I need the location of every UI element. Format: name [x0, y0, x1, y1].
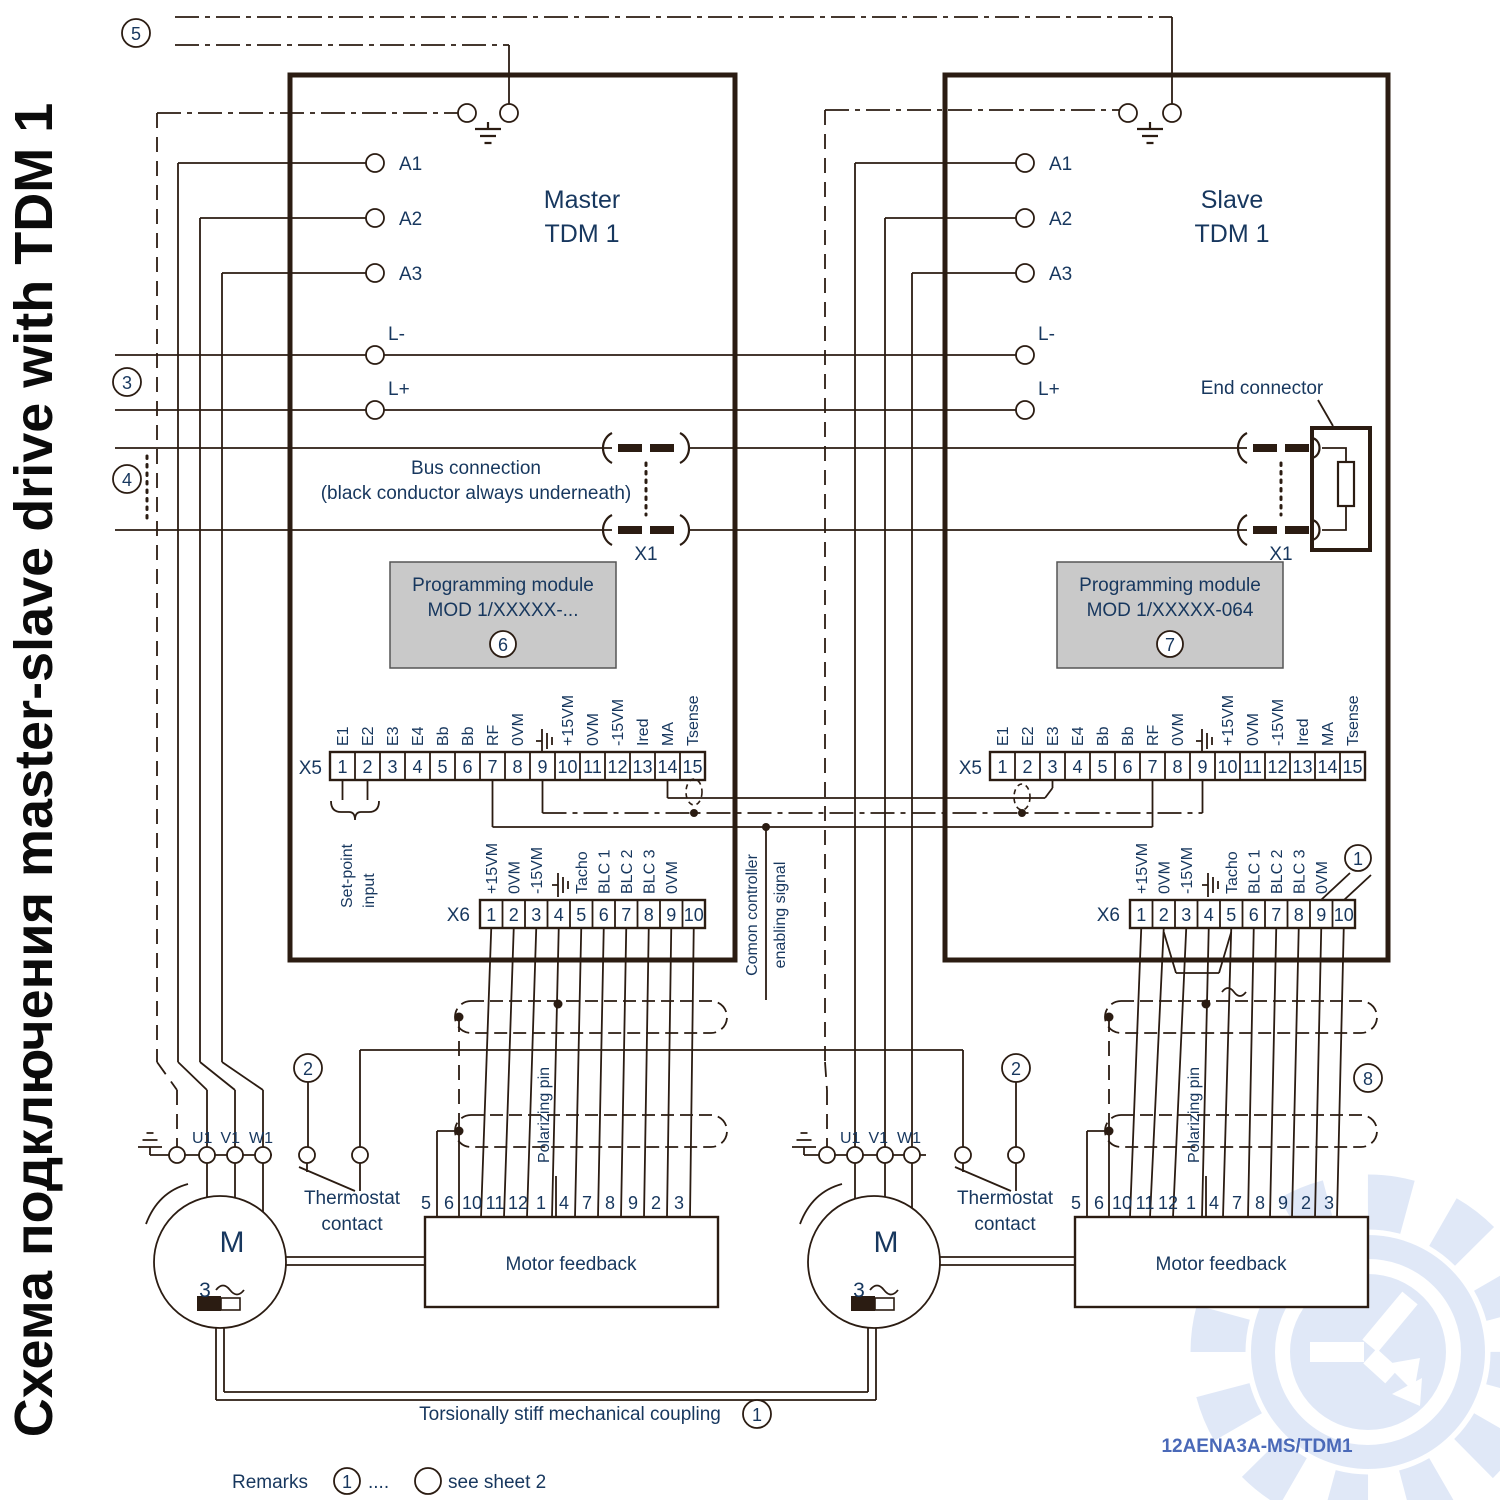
- x5-pin-number: 1: [337, 757, 347, 777]
- power-wires-master: [157, 154, 384, 1147]
- ground-icon: [475, 122, 501, 143]
- x5-pin-number: 5: [437, 757, 447, 777]
- ground-icon: [1196, 729, 1212, 753]
- x5-pin-number: 5: [1097, 757, 1107, 777]
- setpoint-label: input: [361, 873, 378, 908]
- x5-pin-number: 4: [1072, 757, 1082, 777]
- x5-signal-label: E4: [1070, 726, 1087, 746]
- feedback-pin-number: 4: [559, 1193, 569, 1213]
- common-signal-label: Comon controller: [744, 853, 761, 976]
- x5-signal-label: RF: [485, 724, 502, 746]
- x6-label: X6: [1097, 905, 1120, 926]
- svg-text:7: 7: [1165, 635, 1175, 655]
- ground-icon: [1202, 873, 1218, 897]
- x6-pin-number: 4: [554, 905, 564, 925]
- feedback-pin-number: 2: [651, 1193, 661, 1213]
- ground-icon: [536, 729, 552, 753]
- motor-terminal-label: V1: [869, 1130, 889, 1147]
- motor-terminal-label: U1: [192, 1130, 213, 1147]
- feedback-pin-number: 9: [1278, 1193, 1288, 1213]
- doc-number: 12AENA3A-MS/TDM1: [1161, 1436, 1353, 1457]
- x6-signal-label: BLC 1: [597, 849, 614, 894]
- x5-pin-number: 7: [1147, 757, 1157, 777]
- x6-pin-number: 1: [1136, 905, 1146, 925]
- svg-text:5: 5: [131, 24, 141, 44]
- x5-signal-label: -15VM: [1270, 699, 1287, 746]
- cable-shield: [1105, 1001, 1377, 1033]
- feedback-pin-number: 6: [444, 1193, 454, 1213]
- x6-pin-number: 2: [1159, 905, 1169, 925]
- x5-signal-label: E2: [360, 726, 377, 746]
- cable-shield: [455, 1001, 727, 1033]
- x5-pin-number: 14: [657, 757, 677, 777]
- feedback-pin-number: 1: [1186, 1193, 1196, 1213]
- empty-badge-circle: [415, 1468, 441, 1494]
- x5-signal-label: 0VM: [585, 713, 602, 746]
- x6-signal-label: BLC 2: [1269, 849, 1286, 894]
- motor-cable-slave: [1087, 928, 1377, 1217]
- svg-text:6: 6: [498, 635, 508, 655]
- motor-phase-label: 3: [853, 1279, 865, 1302]
- feedback-pin-number: 9: [628, 1193, 638, 1213]
- x5-pin-number: 1: [997, 757, 1007, 777]
- x5-signal-label: Tsense: [1345, 695, 1362, 746]
- ground-icon: [1137, 122, 1163, 143]
- x6-signal-label: 0VM: [1157, 861, 1174, 894]
- remarks-label: Remarks: [232, 1472, 308, 1493]
- x6-pin-number: 6: [599, 905, 609, 925]
- x6-signal-label: +15VM: [1134, 843, 1151, 894]
- motor-m-label: M: [874, 1226, 899, 1259]
- terminal-label: A1: [399, 154, 422, 175]
- x5-signal-label: Bb: [435, 726, 452, 746]
- thermostat-label: Thermostat: [304, 1188, 401, 1209]
- motor-feedback-label: Motor feedback: [506, 1254, 637, 1275]
- x5-signal-label: -15VM: [610, 699, 627, 746]
- terminating-resistor: [1338, 462, 1354, 506]
- x6-signal-label: 0VM: [507, 861, 524, 894]
- feedback-pin-number: 3: [1324, 1193, 1334, 1213]
- x5-signal-label: 0VM: [510, 713, 527, 746]
- x5-signal-label: E1: [335, 726, 352, 746]
- bus-label-2: (black conductor always underneath): [321, 483, 632, 504]
- feedback-pin-number: 4: [1209, 1193, 1219, 1213]
- x5-pin-number: 13: [1292, 757, 1312, 777]
- motor-cable-master: [437, 928, 727, 1217]
- x5-pin-number: 4: [412, 757, 422, 777]
- x5-label: X5: [959, 758, 982, 779]
- x5-pin-number: 12: [607, 757, 627, 777]
- x5-signal-label: Ired: [1295, 718, 1312, 746]
- x6-pin-number: 5: [1226, 905, 1236, 925]
- wiring-diagram: Схема подключения master-slave drive wit…: [0, 0, 1500, 1500]
- x5-pin-number: 12: [1267, 757, 1287, 777]
- mechanical-coupling: [216, 1328, 876, 1400]
- polarizing-pin-label: Polarizing pin: [1186, 1067, 1203, 1163]
- feedback-pin-number: 10: [1112, 1193, 1132, 1213]
- x6-signal-label: BLC 3: [642, 849, 659, 894]
- x5-signal-label: E1: [995, 726, 1012, 746]
- motor-master: [146, 1184, 286, 1328]
- x5-pin-number: 3: [387, 757, 397, 777]
- terminal-label: A3: [1049, 264, 1072, 285]
- svg-text:1: 1: [1353, 849, 1363, 869]
- cable-shield: [455, 1115, 727, 1147]
- module-label: Programming module: [412, 575, 594, 596]
- x5-signal-label: RF: [1145, 724, 1162, 746]
- remarks-see-sheet: see sheet 2: [448, 1472, 546, 1493]
- motor-terminal-label: W1: [249, 1130, 273, 1147]
- x6-pin-number: 10: [684, 905, 704, 925]
- thermostat-label: Thermostat: [957, 1188, 1054, 1209]
- svg-text:1: 1: [752, 1405, 762, 1425]
- x5-pin-number: 2: [1022, 757, 1032, 777]
- feedback-pin-number: 2: [1301, 1193, 1311, 1213]
- x5-signal-label: E2: [1020, 726, 1037, 746]
- feedback-pin-number: 8: [1255, 1193, 1265, 1213]
- master-title: Master: [544, 186, 620, 214]
- x5-interconnect: [331, 779, 1203, 1000]
- x6-signal-label: BLC 2: [619, 849, 636, 894]
- x6-signal-label: -15VM: [529, 847, 546, 894]
- feedback-pin-number: 11: [486, 1193, 505, 1213]
- terminal-label: A3: [399, 264, 422, 285]
- x5-signal-label: E4: [410, 726, 427, 746]
- x1-label: X1: [634, 544, 657, 565]
- common-signal-label: enabling signal: [772, 862, 789, 969]
- x6-signal-label: Tacho: [574, 851, 591, 894]
- end-connector: [1312, 400, 1370, 550]
- thermostat-label: contact: [321, 1214, 383, 1235]
- x6-pin-number: 8: [644, 905, 654, 925]
- module-label: Programming module: [1079, 575, 1261, 596]
- feedback-pin-number: 7: [1232, 1193, 1242, 1213]
- svg-text:1: 1: [342, 1472, 352, 1492]
- x6-pin-number: 3: [1181, 905, 1191, 925]
- x6-pin-number: 5: [576, 905, 586, 925]
- feedback-pin-number: 7: [582, 1193, 592, 1213]
- x5-pin-number: 2: [362, 757, 372, 777]
- x5-pin-number: 15: [1342, 757, 1362, 777]
- x6-pin-number: 3: [531, 905, 541, 925]
- motor-terminal-label: W1: [897, 1130, 921, 1147]
- ground-icon: [552, 873, 568, 897]
- setpoint-label: Set-point: [339, 843, 356, 908]
- x5-pin-number: 10: [557, 757, 577, 777]
- x6-pin-number: 8: [1294, 905, 1304, 925]
- x6-signal-label: BLC 1: [1247, 849, 1264, 894]
- diagram-canvas: Схема подключения master-slave drive wit…: [0, 0, 1500, 1500]
- x6-pin-number: 6: [1249, 905, 1259, 925]
- polarizing-pin-label: Polarizing pin: [536, 1067, 553, 1163]
- feedback-pin-number: 3: [674, 1193, 684, 1213]
- l-minus-label: L-: [1038, 324, 1055, 345]
- terminal-label: A2: [1049, 209, 1072, 230]
- x5-pin-number: 14: [1317, 757, 1337, 777]
- svg-text:3: 3: [122, 373, 132, 393]
- cable-shield: [1105, 1115, 1377, 1147]
- x5-pin-number: 6: [462, 757, 472, 777]
- x5-signal-label: MA: [1320, 722, 1337, 746]
- svg-text:2: 2: [1011, 1059, 1021, 1079]
- x6-signal-label: +15VM: [484, 843, 501, 894]
- x5-pin-number: 9: [1197, 757, 1207, 777]
- x6-pin-number: 9: [666, 905, 676, 925]
- thermostat-circuit: [299, 1050, 1024, 1191]
- feedback-pin-number: 10: [462, 1193, 482, 1213]
- x5-signal-label: Bb: [1095, 726, 1112, 746]
- x6-signal-label: -15VM: [1179, 847, 1196, 894]
- motor-terminal-label: V1: [221, 1130, 241, 1147]
- bus-lines: [115, 433, 1324, 545]
- x6-pin-number: 7: [1271, 905, 1281, 925]
- remarks-dots: ....: [368, 1472, 389, 1493]
- x5-pin-number: 10: [1217, 757, 1237, 777]
- x5-signal-label: E3: [385, 726, 402, 746]
- x5-signal-label: Bb: [460, 726, 477, 746]
- x5-pin-number: 7: [487, 757, 497, 777]
- bus-label-1: Bus connection: [411, 458, 541, 479]
- x5-label: X5: [299, 758, 322, 779]
- l-minus-label: L-: [388, 324, 405, 345]
- l-plus-label: L+: [1038, 379, 1060, 400]
- brace-icon: [331, 801, 379, 820]
- x5-signal-label: 0VM: [1170, 713, 1187, 746]
- end-connector-label: End connector: [1201, 378, 1324, 399]
- motor-slave: [800, 1184, 940, 1328]
- feedback-pin-number: 12: [1158, 1193, 1178, 1213]
- x5-signal-label: E3: [1045, 726, 1062, 746]
- dc-link-lines: [115, 346, 1034, 419]
- x5-signal-label: MA: [660, 722, 677, 746]
- thermostat-label: contact: [974, 1214, 1036, 1235]
- svg-text:8: 8: [1363, 1069, 1373, 1089]
- slave-title: Slave: [1201, 186, 1264, 214]
- svg-text:2: 2: [303, 1059, 313, 1079]
- master-title2: TDM 1: [545, 220, 620, 248]
- x6-pin-number: 7: [621, 905, 631, 925]
- x6-label: X6: [447, 905, 470, 926]
- coupling-label: Torsionally stiff mechanical coupling: [419, 1404, 721, 1425]
- module-label: MOD 1/XXXXX-064: [1087, 600, 1254, 621]
- x5-pin-number: 11: [583, 757, 602, 777]
- x5-signal-label: 0VM: [1245, 713, 1262, 746]
- x5-signal-label: Tsense: [685, 695, 702, 746]
- page-title: Схема подключения master-slave drive wit…: [4, 103, 64, 1437]
- x6-signal-label: Tacho: [1224, 851, 1241, 894]
- feedback-pin-number: 5: [1071, 1193, 1081, 1213]
- terminal-label: A2: [399, 209, 422, 230]
- x6-pin-number: 10: [1334, 905, 1354, 925]
- x5-pin-number: 8: [512, 757, 522, 777]
- feedback-pin-number: 6: [1094, 1193, 1104, 1213]
- motor-feedback-label: Motor feedback: [1156, 1254, 1287, 1275]
- x6-pin-number: 2: [509, 905, 519, 925]
- x5-signal-label: +15VM: [1220, 695, 1237, 746]
- x6-signal-label: 0VM: [664, 861, 681, 894]
- remarks-row: Remarks 1 .... see sheet 2: [232, 1468, 546, 1494]
- x5-signal-label: Bb: [1120, 726, 1137, 746]
- feedback-pin-number: 12: [508, 1193, 528, 1213]
- motor-terminal-label: U1: [840, 1130, 861, 1147]
- x5-pin-number: 13: [632, 757, 652, 777]
- x6-pin-number: 4: [1204, 905, 1214, 925]
- svg-text:4: 4: [122, 470, 132, 490]
- x6-pin-number: 9: [1316, 905, 1326, 925]
- motor-m-label: M: [220, 1226, 245, 1259]
- feedback-pin-number: 1: [536, 1193, 546, 1213]
- ac-tilde-icon: [1222, 988, 1246, 996]
- slave-title2: TDM 1: [1195, 220, 1270, 248]
- x5-pin-number: 15: [682, 757, 702, 777]
- x5-pin-number: 8: [1172, 757, 1182, 777]
- x5-pin-number: 9: [537, 757, 547, 777]
- feedback-pin-number: 11: [1136, 1193, 1155, 1213]
- x5-signal-label: +15VM: [560, 695, 577, 746]
- x5-pin-number: 3: [1047, 757, 1057, 777]
- x6-pin-number: 1: [486, 905, 496, 925]
- x5-pin-number: 11: [1243, 757, 1262, 777]
- module-label: MOD 1/XXXXX-...: [428, 600, 579, 621]
- terminal-label: A1: [1049, 154, 1072, 175]
- x5-pin-number: 6: [1122, 757, 1132, 777]
- x6-signal-label: BLC 3: [1292, 849, 1309, 894]
- feedback-pin-number: 8: [605, 1193, 615, 1213]
- l-plus-label: L+: [388, 379, 410, 400]
- x5-signal-label: Ired: [635, 718, 652, 746]
- motor-phase-label: 3: [199, 1279, 211, 1302]
- feedback-pin-number: 5: [421, 1193, 431, 1213]
- power-wires-slave: [825, 154, 1034, 1147]
- x6-signal-label: 0VM: [1314, 861, 1331, 894]
